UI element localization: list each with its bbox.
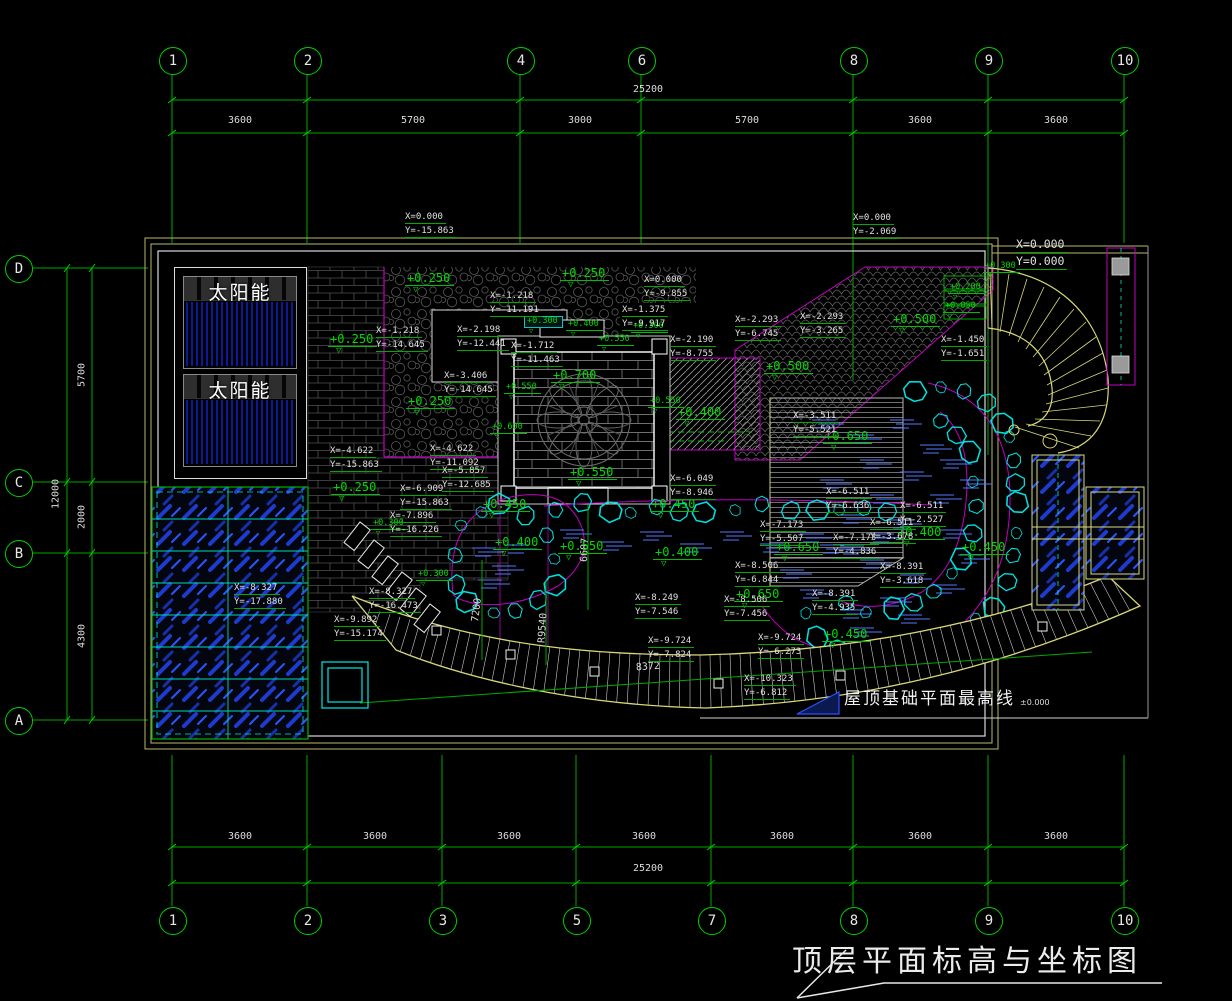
dimension-label: R9540 [536,613,549,644]
elevation-value: +0.700 [551,369,600,383]
linework-svg [0,0,1232,1001]
elevation-triangle-icon: ▽ [636,333,640,339]
coordinate-x-value: X=-1.712 [511,341,557,353]
coordinate-label: X=-7.173 Y=-4.836 [833,533,879,561]
elevation-triangle-icon: ▽ [948,313,952,319]
coordinate-x-value: X=-4.622 [330,446,376,458]
coordinate-x-value: X=-9.892 [334,615,380,627]
coordinate-x-value: X=-7.173 [760,520,806,532]
elevation-triangle-icon: ▽ [509,394,513,400]
dimension-label: 25200 [633,84,663,95]
coordinate-y-value: Y=-3.265 [800,326,846,338]
coordinate-x-value: X=-8.249 [635,593,681,605]
grid-bubble: 10 [1111,907,1139,935]
roof-note-text: 屋顶基础平面最高线 [844,684,1015,709]
dimension-label: 3600 [1044,115,1068,126]
dimension-label: 4300 [77,624,88,648]
elevation-label: +0.600 ▽ [490,423,527,440]
coordinate-y-value: Y=-6.636 [826,501,872,513]
grid-bubble-label: 4 [517,53,525,69]
elevation-label: +0.450 ▽ [960,541,1009,563]
elevation-label: +0.250 ▽ [331,481,380,503]
dimension-label: 3600 [908,831,932,842]
grid-bubble-label: 10 [1117,913,1134,929]
coordinate-y-value: Y=-7.546 [635,607,681,619]
coordinate-label: X=-8.506 Y=-7.456 [724,595,770,623]
coordinate-label: X=-8.327 Y=-17.880 [234,583,286,611]
coordinate-x-value: X=-2.293 [735,315,781,327]
solar-panel-cells [186,400,294,464]
coordinate-y-value: Y=-9.855 [644,289,690,301]
coordinate-label: X=-7.173 Y=-5.507 [760,520,806,548]
grid-bubble-label: 2 [304,913,312,929]
coordinate-y-value: Y=-4.836 [833,547,879,559]
coordinate-y-value: Y=-15.174 [334,629,386,641]
elevation-value: +0.450 [822,628,871,642]
coordinate-label: X=-8.506 Y=-6.844 [735,561,781,589]
grid-bubble-label: 5 [573,913,581,929]
elevation-value: +0.250 [331,481,380,495]
coordinate-y-value: Y=-15.863 [400,498,452,510]
elevation-triangle-icon: ▽ [501,550,506,558]
coordinate-y-value: Y=-8.755 [670,349,716,361]
coordinate-x-value: X=-6.049 [670,474,716,486]
coordinate-label: X=-6.909 Y=-15.863 [400,484,452,512]
elevation-triangle-icon: ▽ [602,346,606,352]
grid-bubble: 4 [507,47,535,75]
elevation-label: +0.300 ▽ [983,262,1020,279]
planter-box [322,662,368,708]
elevation-triangle-icon: ▽ [899,327,904,335]
coordinate-y-value: Y=-16.473 [369,601,421,613]
grid-bubble: 3 [429,907,457,935]
elevation-triangle-icon: ▽ [953,294,957,300]
elevation-label: +0.700 ▽ [551,369,600,391]
coordinate-y-value: Y=-17.880 [234,597,286,609]
coordinate-y-value: Y=-6.812 [744,688,790,700]
coordinate-y-value: Y=-6.844 [735,575,781,587]
coordinate-y-value: Y=-9.917 [622,319,668,331]
coordinate-y-value: Y=-15.863 [405,226,457,238]
dimension-label: 3600 [1044,831,1068,842]
grid-bubble: 1 [159,907,187,935]
coordinate-x-value: X=-1.218 [376,326,422,338]
elevation-label: +0.250 ▽ [328,333,377,355]
coordinate-y-value: Y=-6.745 [735,329,781,341]
coordinate-x-value: X=-9.724 [758,633,804,645]
grid-bubble-label: D [15,261,23,277]
coordinate-x-value: X=-8.391 [812,589,858,601]
roof-note-value: ±0.000 [1020,698,1050,707]
coordinate-y-value: Y=-5.521 [793,425,839,437]
coordinate-label: X=-9.892 Y=-15.174 [334,615,386,643]
coordinate-y-value: Y=-5.507 [760,534,806,546]
coordinate-y-value: Y=-4.935 [812,603,858,615]
elevation-label: +0.400 ▽ [653,546,702,568]
dimension-label: 3600 [632,831,656,842]
column-structure [1107,248,1135,385]
coordinate-x-value: X=-6.511 [900,501,946,513]
coordinate-label: X=-2.293 Y=-3.265 [800,312,846,340]
grid-bubble-label: 1 [169,913,177,929]
grid-bubble: 5 [563,907,591,935]
elevation-triangle-icon: ▽ [489,512,494,520]
coordinate-label: X=-9.724 Y=-7.824 [648,636,694,664]
elevation-triangle-icon: ▽ [339,495,344,503]
elevation-triangle-icon: ▽ [782,555,787,563]
dimension-label: 3600 [908,115,932,126]
coordinate-y-value: Y=-11.191 [490,305,542,317]
grid-bubble: 2 [294,47,322,75]
coordinate-x-value: X=-5.857 [442,466,488,478]
grid-bubble-label: 9 [985,53,993,69]
coordinate-x-value: X=0.000 [644,275,685,287]
elevation-label: +0.500 ▽ [764,360,813,382]
elevation-value: +0.500 [764,360,813,374]
coordinate-label: X=0.000 Y=-15.863 [405,212,457,240]
dimension-label: 3600 [770,831,794,842]
elevation-triangle-icon: ▽ [421,581,425,587]
coordinate-label: X=-6.049 Y=-8.946 [670,474,716,502]
dimension-label: 3000 [568,115,592,126]
coordinate-x-value: X=-6.511 [826,487,872,499]
coordinate-y-value: Y=-16.226 [390,525,442,537]
elevation-triangle-icon: ▽ [684,420,689,428]
coordinate-y-value: Y=-7.456 [724,609,770,621]
solar-panel: 太阳能 [183,374,297,467]
grid-bubble: 8 [840,47,868,75]
grid-bubble-label: 8 [850,53,858,69]
grid-bubble-label: 10 [1117,53,1134,69]
elevation-label: +0.550 ▽ [558,540,607,562]
coordinate-y-value: Y=-14.645 [376,340,428,352]
grid-bubble: C [5,469,33,497]
coordinate-label: X=-1.450 Y=-1.651 [941,335,987,363]
elevation-triangle-icon: ▽ [988,273,992,279]
grid-bubble: B [5,540,33,568]
elevation-label: +0.550 ▽ [597,335,634,352]
coordinate-x-value: X=-2.190 [670,335,716,347]
elevation-label: +0.400 ▽ [493,536,542,558]
coordinate-x-value: X=-2.198 [457,325,503,337]
elevation-label: +0.300 ▽ [416,570,453,587]
coordinate-label: X=-8.391 Y=-4.935 [812,589,858,617]
grid-bubble: 8 [840,907,868,935]
elevation-triangle-icon: ▽ [576,480,581,488]
coordinate-x-value: X=-1.450 [941,335,987,347]
coordinate-label: X=-2.190 Y=-8.755 [670,335,716,363]
coordinate-label: X=-2.198 Y=-12.441 [457,325,509,353]
elevation-value: +0.250 [405,272,454,286]
dimension-label: 5700 [77,363,88,387]
grid-bubble: A [5,707,33,735]
elevation-triangle-icon: ▽ [661,560,666,568]
elevation-value: +0.550 [558,540,607,554]
coordinate-x-value: X=-7.173 [833,533,879,545]
coordinate-x-value: X=-2.293 [800,312,846,324]
coordinate-label: X=-8.391 Y=-3.618 [880,562,926,590]
cad-roof-plan-canvas: 太阳能 太阳能 顶层平面标高与坐标图 屋顶基础平面最高线 ±0.000 1 2 … [0,0,1232,1001]
coordinate-y-value: Y=-3.618 [880,576,926,588]
coordinate-x-value: X=-9.724 [648,636,694,648]
coordinate-label: X=-7.896 Y=-16.226 [390,511,442,539]
elevation-triangle-icon: ▽ [529,328,533,334]
elevation-triangle-icon: ▽ [376,530,380,536]
coordinate-x-value: X=-10.323 [744,674,796,686]
elevation-value: +0.400 [493,536,542,550]
coordinate-y-value: Y=-15.863 [330,460,382,472]
grid-bubble-label: C [15,475,23,491]
elevation-label: +0.500 ▽ [891,313,940,335]
elevation-value: +0.400 [653,546,702,560]
drawing-title: 顶层平面标高与坐标图 [792,936,1142,980]
coordinate-x-value: X=-1.375 [622,305,668,317]
coordinate-y-value: Y=-6.273 [758,647,804,659]
grid-bubble-label: B [15,546,23,562]
solar-panel-cells [186,302,294,366]
grid-bubble-label: 8 [850,913,858,929]
solar-panel-label: 太阳能 [208,376,271,403]
coordinate-x-value: X=-4.622 [430,444,476,456]
dimension-label: 5700 [735,115,759,126]
coordinate-x-value: X=-8.327 [369,587,415,599]
elevation-value: +0.500 [891,313,940,327]
elevation-triangle-icon: ▽ [568,281,573,289]
coordinate-label: X=-4.622 Y=-15.863 [330,446,382,474]
elevation-triangle-icon: ▽ [831,444,836,452]
coordinate-label: X=-2.293 Y=-6.745 [735,315,781,343]
solar-panel: 太阳能 [183,276,297,369]
grid-bubble: 9 [975,907,1003,935]
coordinate-label: X=-9.724 Y=-6.273 [758,633,804,661]
dimension-label: 12000 [51,479,62,509]
elevation-label: +0.200 ▽ [948,283,985,300]
coordinate-x-value: X=0.000 [853,213,894,225]
coordinate-y-value: Y=-1.651 [941,349,987,361]
grid-bubble: 1 [159,47,187,75]
coordinate-y-value: Y=-7.824 [648,650,694,662]
grid-bubble: 6 [628,47,656,75]
coordinate-x-value: X=-8.506 [735,561,781,573]
elevation-value: +0.250 [328,333,377,347]
grid-bubble: 10 [1111,47,1139,75]
roof-note: 屋顶基础平面最高线 ±0.000 [844,684,1050,709]
coordinate-label: X=-6.511 Y=-6.636 [826,487,872,515]
dimension-label: 25200 [633,863,663,874]
elevation-label: +0.550 ▽ [648,397,685,414]
elevation-triangle-icon: ▽ [336,347,341,355]
elevation-value: +0.450 [960,541,1009,555]
elevation-label: +0.050 ▽ [943,302,980,319]
elevation-label: +0.550 ▽ [504,383,541,400]
coordinate-label: X=-8.327 Y=-16.473 [369,587,421,615]
coordinate-x-value: X=-8.327 [234,583,280,595]
coordinate-y-value: Y=0.000 [1016,255,1067,270]
elevation-value: +0.450 [481,498,530,512]
coordinate-x-value: X=0.000 [405,212,446,224]
coordinate-label: X=0.000 Y=-2.069 [853,213,899,241]
elevation-label: +0.250 ▽ [560,267,609,289]
elevation-triangle-icon: ▽ [413,286,418,294]
elevation-value: +0.250 [560,267,609,281]
dimension-label: 5700 [401,115,425,126]
grid-bubble: D [5,255,33,283]
grid-bubble-label: 3 [439,913,447,929]
coordinate-label: X=-1.712 Y=-11.463 [511,341,563,369]
elevation-label: +0.550 ▽ [568,466,617,488]
coordinate-y-value: Y=-2.069 [853,227,899,239]
coordinate-y-value: Y=-11.463 [511,355,563,367]
coordinate-label: X=0.000 Y=0.000 [1016,238,1067,272]
elevation-triangle-icon: ▽ [653,408,657,414]
solar-panel-enclosure: 太阳能 太阳能 [174,267,307,479]
grid-bubble: 7 [698,907,726,935]
elevation-triangle-icon: ▽ [414,409,419,417]
grid-bubble-label: A [15,713,23,729]
coordinate-label: X=-1.375 Y=-9.917 [622,305,668,333]
coordinate-label: X=-1.218 Y=-11.191 [490,291,542,319]
coordinate-x-value: X=0.000 [1016,238,1067,253]
coordinate-x-value: X=-3.406 [444,371,490,383]
coordinate-x-value: X=-6.909 [400,484,446,496]
elevation-triangle-icon: ▽ [968,555,973,563]
dimension-label: 3600 [228,831,252,842]
coordinate-label: X=-3.511 Y=-5.521 [793,411,839,439]
coordinate-label: X=0.000 Y=-9.855 [644,275,690,303]
coordinate-label: X=-10.323 Y=-6.812 [744,674,796,702]
elevation-label: +0.250 ▽ [405,272,454,294]
grid-bubble-label: 6 [638,53,646,69]
grid-bubble-label: 1 [169,53,177,69]
coordinate-label: X=-3.406 Y=-14.645 [444,371,496,399]
elevation-triangle-icon: ▽ [559,383,564,391]
dimension-label: 2000 [77,505,88,529]
coordinate-x-value: X=-8.506 [724,595,770,607]
coordinate-x-value: X=-8.391 [880,562,926,574]
grid-bubble-label: 2 [304,53,312,69]
solar-panel-label: 太阳能 [208,278,271,305]
grid-bubble: 2 [294,907,322,935]
coordinate-x-value: X=-3.511 [793,411,839,423]
coordinate-y-value: Y=-8.946 [670,488,716,500]
coordinate-x-value: X=-7.896 [390,511,436,523]
glass-skylight-large [152,487,308,739]
elevation-value: +0.550 [568,466,617,480]
elevation-triangle-icon: ▽ [495,434,499,440]
elevation-triangle-icon: ▽ [571,331,575,337]
coordinate-y-value: Y=-14.645 [444,385,496,397]
elevation-label: +0.450 ▽ [481,498,530,520]
elevation-triangle-icon: ▽ [566,554,571,562]
dimension-label: 3600 [363,831,387,842]
elevation-triangle-icon: ▽ [830,642,835,650]
dimension-label: 3600 [497,831,521,842]
elevation-label: +0.450 ▽ [822,628,871,650]
elevation-triangle-icon: ▽ [658,512,663,520]
coordinate-y-value: Y=-12.441 [457,339,509,351]
elevation-triangle-icon: ▽ [772,374,777,382]
coordinate-x-value: X=-6.511 [870,518,916,530]
grid-bubble-label: 7 [708,913,716,929]
dimension-label: 3600 [228,115,252,126]
coordinate-label: X=-1.218 Y=-14.645 [376,326,428,354]
grid-bubble: 9 [975,47,1003,75]
grid-bubble-label: 9 [985,913,993,929]
coordinate-label: X=-8.249 Y=-7.546 [635,593,681,621]
coordinate-x-value: X=-1.218 [490,291,536,303]
